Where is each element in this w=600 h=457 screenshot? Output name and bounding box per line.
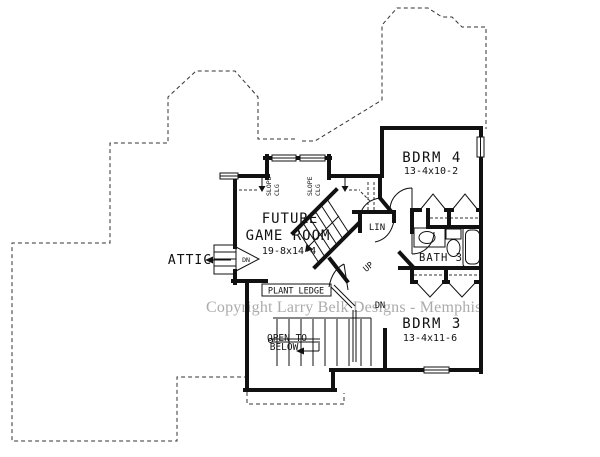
bdrm4-dims: 13-4x10-2 [404,166,458,177]
dn-label: DN [375,301,385,311]
bdrm4-closet-doors [420,194,478,210]
bdrm4-door-swing [390,188,412,210]
game-room-label-1: FUTURE [262,211,319,227]
bath3-label: BATH 3 [419,252,463,264]
bdrm4-label: BDRM 4 [402,150,462,166]
gameroom-window-left [220,173,238,179]
bdrm3-label: BDRM 3 [402,316,462,332]
toilet-tank [446,229,461,239]
room-labels: FUTURE GAME ROOM 19-8x14-4 BDRM 4 13-4x1… [168,150,463,353]
bdrm3-window [424,367,449,373]
roof-outline-top-right [302,8,486,141]
up-label: UP [362,260,376,274]
slope-clg-left-2: CLG [273,184,281,196]
sink [419,232,435,244]
attic-label: ATTIC [168,253,212,268]
gameroom-window-2 [300,155,325,161]
half-wall-dashes [368,182,374,210]
gameroom-window-1 [272,155,296,161]
bathtub-inner [466,230,480,264]
bdrm3-dims: 13-4x11-6 [403,333,457,344]
slope-arrowhead-right-icon [342,186,349,192]
game-room-dims: 19-8x14-4 [262,246,316,257]
attic-ladder-treads [214,252,236,266]
roof-outline-bottom [247,392,344,404]
slope-clg-right-1: SLOPE [306,176,314,196]
plant-ledge-label: PLANT LEDGE [268,287,324,297]
slope-dash-right [349,190,371,202]
gameroom-door-swing [361,198,380,212]
slope-clg-left: SLOPE CLG [265,176,281,196]
dn-attic-label: DN [242,256,250,264]
slope-clg-right: SLOPE CLG [306,176,322,196]
open-below-label-2: BELOW [270,342,299,353]
slope-clg-right-2: CLG [314,184,322,196]
floor-plan-page: Copyright Larry Belk Designs - Memphis [0,0,600,457]
floor-plan-drawing: Copyright Larry Belk Designs - Memphis [0,0,600,457]
game-room-label-2: GAME ROOM [246,228,331,244]
bdrm3-closet-doors [416,282,476,297]
slope-clg-left-1: SLOPE [265,176,273,196]
bdrm4-window [477,137,484,157]
lin-label: LIN [369,223,385,233]
